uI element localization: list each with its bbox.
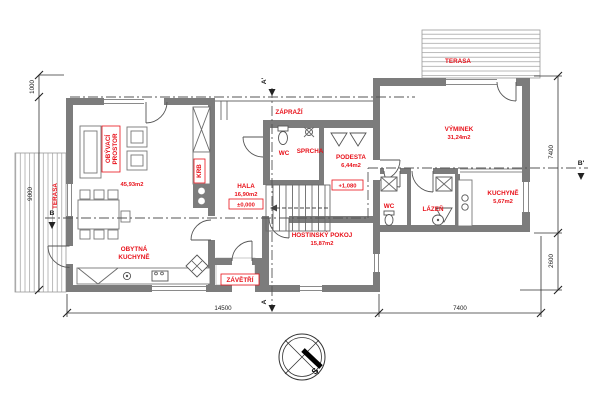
room-label-hala: HALA — [237, 183, 255, 190]
room-label-podesta: PODESTA — [336, 154, 366, 161]
dim-left-bottom: 9000 — [27, 187, 34, 201]
room-label-vyminek: VÝMINEK — [445, 124, 474, 133]
room-area-obyvaci: 45,93m2 — [121, 182, 144, 188]
room-label-wc-middle: WC — [279, 150, 290, 157]
room-label-krb: KRB — [196, 164, 203, 178]
room-label-zavetri: ZÁVĚTŘÍ — [227, 275, 254, 284]
compass-rose: S — [279, 334, 325, 380]
room-area-vyminek: 31,24m2 — [448, 135, 471, 141]
floor-plan-canvas: 14500 7400 7400 2600 1000 9000 A' A B B'… — [0, 0, 600, 400]
terrace-right-hatch — [422, 30, 540, 78]
room-label-sprcha: SPRCHA — [297, 148, 324, 155]
dim-right-top: 7400 — [548, 145, 555, 159]
room-area-hala: 16,90m2 — [235, 192, 258, 198]
compass-needle — [303, 350, 321, 367]
section-marker-b-left: B — [50, 210, 55, 217]
room-label-obytna-1: OBYTNÁ — [121, 244, 148, 253]
room-level-hala: ±0,000 — [237, 203, 255, 209]
room-area-hostinsky: 15,87m2 — [311, 241, 334, 247]
room-label-terasa-left: TERASA — [52, 183, 59, 209]
dim-bottom-right: 7400 — [453, 305, 467, 312]
room-label-lazen: LÁZEŇ — [423, 204, 444, 213]
dim-bottom-left: 14500 — [214, 305, 232, 312]
section-marker-a-bottom: A — [261, 299, 268, 304]
dim-left-top: 1000 — [29, 80, 36, 94]
room-label-obytna-2: KUCHYNĚ — [118, 252, 149, 261]
room-label-obyvaci-2: PROSTOR — [112, 133, 119, 164]
room-label-zaprazi: ZÁPRAŽÍ — [275, 107, 303, 116]
room-label-kuchyne: KUCHYNĚ — [487, 188, 518, 197]
room-label-terasa-right: TERASA — [445, 58, 471, 65]
staircase — [266, 185, 330, 231]
section-marker-a-top: A' — [261, 77, 268, 84]
room-area-kuchyne: 5,67m2 — [493, 199, 513, 205]
room-area-podesta: 6,44m2 — [341, 163, 361, 169]
dim-right-bottom: 2600 — [548, 254, 555, 268]
terrace-left-hatch — [15, 153, 66, 292]
room-label-hostinsky: HOSTINSKÝ POKOJ — [292, 230, 353, 239]
floor-plan-drawing: 14500 7400 7400 2600 1000 9000 A' A B B'… — [0, 0, 600, 400]
room-label-obyvaci-1: OBÝVACÍ — [103, 135, 112, 163]
section-marker-b-right: B' — [578, 160, 585, 167]
room-level-podesta: +1,080 — [339, 184, 357, 190]
room-label-wc-right: WC — [384, 203, 395, 210]
